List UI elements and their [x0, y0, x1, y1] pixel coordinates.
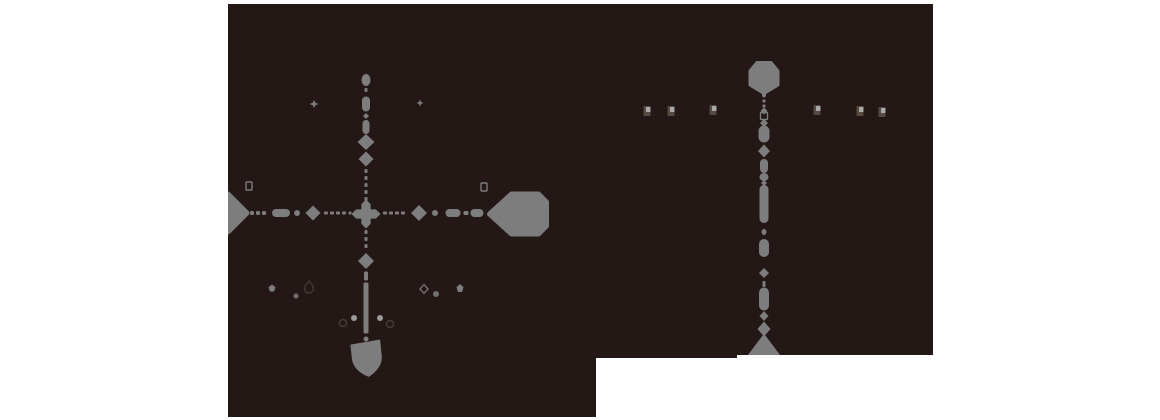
route-dash	[250, 211, 254, 215]
route-dash	[763, 100, 766, 103]
route-segment	[363, 120, 370, 134]
hexagon-route-badge[interactable]	[750, 63, 778, 94]
route-dash	[365, 190, 368, 194]
route-dot	[364, 337, 369, 342]
route-dash	[262, 211, 266, 215]
route-segment	[759, 239, 769, 257]
interchange-diamond-marker[interactable]	[352, 200, 381, 229]
route-dash	[365, 244, 368, 248]
route-dot	[432, 210, 438, 216]
poi-dot[interactable]	[377, 315, 383, 321]
route-dot	[362, 74, 371, 86]
route-dot	[760, 173, 769, 181]
route-segment	[362, 97, 370, 112]
route-dash	[464, 211, 469, 215]
map-stage	[0, 0, 1160, 420]
route-dash	[763, 281, 766, 287]
route-dot	[762, 229, 767, 235]
route-dash	[336, 212, 340, 215]
route-dash	[365, 237, 368, 241]
route-dash	[330, 212, 334, 215]
route-dash	[395, 212, 399, 215]
route-dash	[324, 212, 328, 215]
route-dash	[342, 212, 346, 215]
building-poi-icon[interactable]	[879, 107, 886, 117]
route-dash	[349, 212, 352, 215]
route-dot	[294, 210, 300, 216]
route-segment	[759, 126, 770, 143]
route-dash	[365, 230, 368, 234]
route-dash	[365, 176, 368, 180]
route-segment	[272, 209, 290, 217]
route-dash	[401, 212, 405, 215]
route-solid-segment	[364, 283, 369, 334]
poi-dot[interactable]	[351, 315, 357, 321]
building-poi-icon[interactable]	[814, 105, 821, 115]
route-segment	[760, 159, 768, 173]
map-panel-right-lower[interactable]	[596, 4, 737, 358]
building-poi-icon[interactable]	[710, 105, 717, 115]
route-dash	[364, 272, 368, 281]
route-dash	[383, 212, 387, 215]
route-dash	[365, 169, 368, 173]
route-dash	[256, 211, 260, 215]
map-panels	[228, 4, 933, 417]
poi-dot[interactable]	[294, 294, 299, 299]
route-dot	[762, 93, 766, 98]
poi-dot[interactable]	[433, 291, 439, 297]
route-dash	[365, 88, 368, 92]
route-dash	[365, 183, 368, 187]
map-canvas[interactable]	[0, 0, 1160, 420]
route-dash	[389, 212, 393, 215]
building-poi-icon[interactable]	[668, 106, 675, 116]
route-segment	[471, 209, 484, 217]
building-poi-icon[interactable]	[857, 106, 864, 116]
route-segment	[446, 209, 461, 217]
route-dash	[763, 105, 766, 108]
route-segment	[760, 185, 769, 223]
building-poi-icon[interactable]	[644, 106, 651, 116]
route-segment	[759, 288, 769, 311]
